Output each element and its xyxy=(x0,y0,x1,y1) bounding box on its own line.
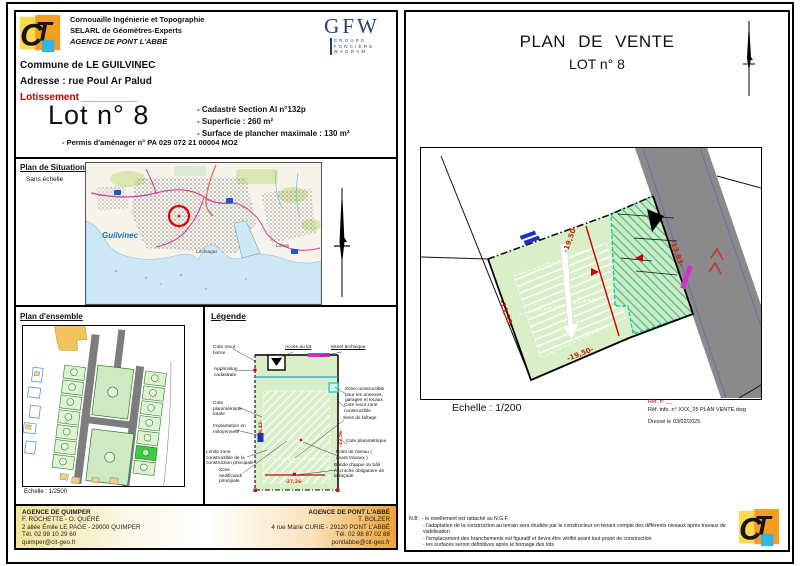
agency-pont-labbe: AGENCE DE PONT L'ABBÉ T. BOLZER 4 rue Ma… xyxy=(206,506,396,548)
agency-footer: AGENCE DE QUIMPER F. ROCHETTE - O. QUÉRÉ… xyxy=(16,506,396,548)
agency-line: 4 rue Marie CURIE - 29120 PONT L'ABBÉ xyxy=(212,524,390,531)
nb-notes: N.B : - le nivellement est rattaché au N… xyxy=(409,516,754,549)
town-label: Guilvinec xyxy=(102,231,139,240)
nb-line: N.B : - le nivellement est rattaché au N… xyxy=(409,516,754,523)
cit-logo: C T xyxy=(736,508,784,550)
plan-de-vente-sheet: C T Cornouaille Ingénierie et Topographi… xyxy=(0,0,800,566)
agency-email: quimper@cit-geo.fr xyxy=(22,539,200,546)
agency-email: pontlabbe@cit-geo.fr xyxy=(212,539,390,546)
legende-label: Implantation en mitoyenneté xyxy=(213,424,247,435)
lot-drawing: -19,50- -19,50- -13,33- -13,83- xyxy=(420,147,762,400)
legende-label: Muret technique xyxy=(331,345,367,351)
agency-line: 2 allée Émile LE PAGE - 29000 QUIMPER xyxy=(22,524,200,531)
legende-label: Accès au lot xyxy=(285,345,315,351)
north-arrow xyxy=(742,20,756,98)
ensemble-title: Plan d'ensemble xyxy=(20,312,83,321)
commune-line: Commune de LE GUILVINEC xyxy=(20,60,155,71)
reference-block: Réf. n° __ Réf. info. n° XXX_25 PLAN VEN… xyxy=(648,398,746,426)
left-panel: C T Cornouaille Ingénierie et Topographi… xyxy=(14,10,398,550)
company-line: AGENCE DE PONT L'ABBÉ xyxy=(70,36,204,47)
legende-dim-left: -9,42- xyxy=(258,420,264,435)
ref-info: Réf. info. n° XXX_25 PLAN VENTE.dwg xyxy=(648,406,746,414)
ensemble-legende-section: Plan d'ensemble xyxy=(16,307,396,506)
legende-dim-bottom: -27,26- xyxy=(285,479,303,485)
niveau-marker xyxy=(300,439,303,442)
ensemble-scale: Echelle : 1/2500 xyxy=(24,489,67,495)
legende-dim-right: -23,56- xyxy=(338,429,344,447)
borne-marker xyxy=(254,489,258,493)
district-label: Lohan xyxy=(276,243,290,249)
north-arrow xyxy=(334,186,350,299)
agency-line: F. ROCHETTE - O. QUÉRÉ xyxy=(22,516,200,523)
gfw-wordmark: GROUPE FONCIÈRE WAGRAM xyxy=(330,38,375,55)
ref-number: Réf. n° __ xyxy=(648,398,746,406)
nb-line: - l'emplacement des branchements est fig… xyxy=(423,536,754,543)
situation-section: Plan de Situation Sans échelle xyxy=(16,159,396,307)
vente-title: PLAN DE VENTE xyxy=(406,32,788,52)
zone-annexes-symbol xyxy=(329,383,338,392)
right-panel: PLAN DE VENTE LOT n° 8 xyxy=(404,10,790,552)
district-label: Léchiagat xyxy=(196,249,217,255)
agency-line: T. BOLZER xyxy=(212,516,390,523)
legende-label: Cote recul zone constructible xyxy=(344,403,384,414)
svg-text:T: T xyxy=(754,511,773,541)
permis-line: - Permis d'aménager n° PA 029 072 21 000… xyxy=(62,138,238,147)
nb-line: - l'adaptation de la construction au ter… xyxy=(423,523,754,536)
date-line: Dressé le 03/02/2025 xyxy=(648,418,746,426)
agency-line: Tél. 02 98 10 29 60 xyxy=(22,531,200,538)
company-line: SELARL de Géomètres-Experts xyxy=(70,25,204,36)
legende-label: Limite zone constructible de la construc… xyxy=(206,450,254,467)
agency-title: AGENCE DE PONT L'ABBÉ xyxy=(212,509,390,516)
legende-label: Point de niveau ( avant travaux ) xyxy=(336,450,384,461)
nb-line: - les surfaces seront définitives après … xyxy=(423,542,754,549)
legende-label: Bande d'appui du bâti Accroche obligatoi… xyxy=(334,463,386,480)
legende-label: Cote planimétrique xyxy=(346,439,392,445)
legende-label: Application cadastrale xyxy=(214,367,258,378)
company-line: Cornouaille Ingénierie et Topographie xyxy=(70,14,204,25)
superficie-line: - Superficie : 260 m² xyxy=(197,116,350,128)
legende-label: Zone aedificandi principale xyxy=(219,468,253,485)
situation-scale: Sans échelle xyxy=(26,176,63,183)
adresse-line: Adresse : rue Poul Ar Palud xyxy=(20,76,152,87)
cit-logo: C T xyxy=(19,13,63,57)
gfw-acronym: GFW xyxy=(316,15,388,37)
legende-label: Cote recul borne xyxy=(213,345,247,356)
cadastre-line: - Cadastré Section AI n°132p xyxy=(197,104,350,116)
svg-text:T: T xyxy=(35,17,54,47)
situation-map: Guilvinec Léchiagat Lohan xyxy=(85,162,322,305)
vente-lot-number: LOT n° 8 xyxy=(406,56,788,72)
agency-line: Tél. 02 98 87 02 88 xyxy=(212,531,390,538)
legende-panel: Légende xyxy=(203,307,396,504)
vente-scale: Echelle : 1/200 xyxy=(452,402,521,414)
gfw-logo: GFW GROUPE FONCIÈRE WAGRAM xyxy=(316,15,388,58)
title-block: C T Cornouaille Ingénierie et Topographi… xyxy=(16,12,396,159)
situation-title: Plan de Situation xyxy=(20,163,85,172)
legende-label: Cote planimétrique totale xyxy=(213,401,247,418)
borne-marker xyxy=(336,489,340,493)
legende-label: Sens de faîtage xyxy=(343,416,381,422)
legende-label: Zone constructible pour les annexes, gar… xyxy=(345,387,395,404)
lot-number-title: Lot n° 8 xyxy=(48,100,149,131)
agency-quimper: AGENCE DE QUIMPER F. ROCHETTE - O. QUÉRÉ… xyxy=(16,506,206,548)
lot-details: - Cadastré Section AI n°132p - Superfici… xyxy=(197,104,350,140)
ensemble-map xyxy=(22,325,185,487)
company-block: Cornouaille Ingénierie et Topographie SE… xyxy=(70,14,204,47)
